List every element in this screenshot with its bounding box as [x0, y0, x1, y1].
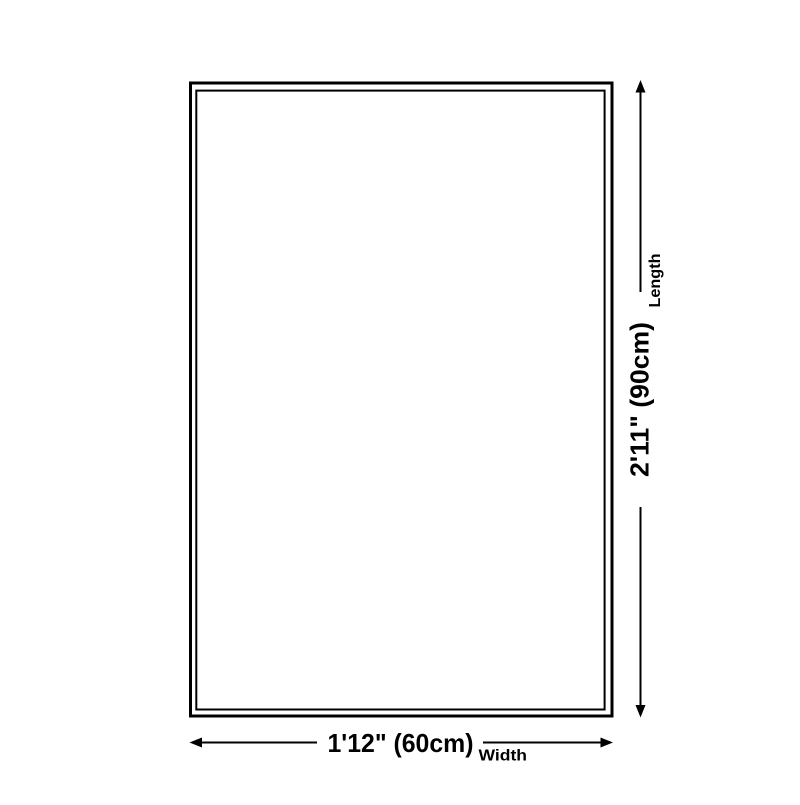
svg-text:Length: Length	[647, 254, 664, 308]
svg-text:1'12" (60cm): 1'12" (60cm)	[328, 728, 474, 758]
svg-text:Width: Width	[479, 748, 528, 765]
svg-text:2'11" (90cm): 2'11" (90cm)	[625, 322, 655, 477]
